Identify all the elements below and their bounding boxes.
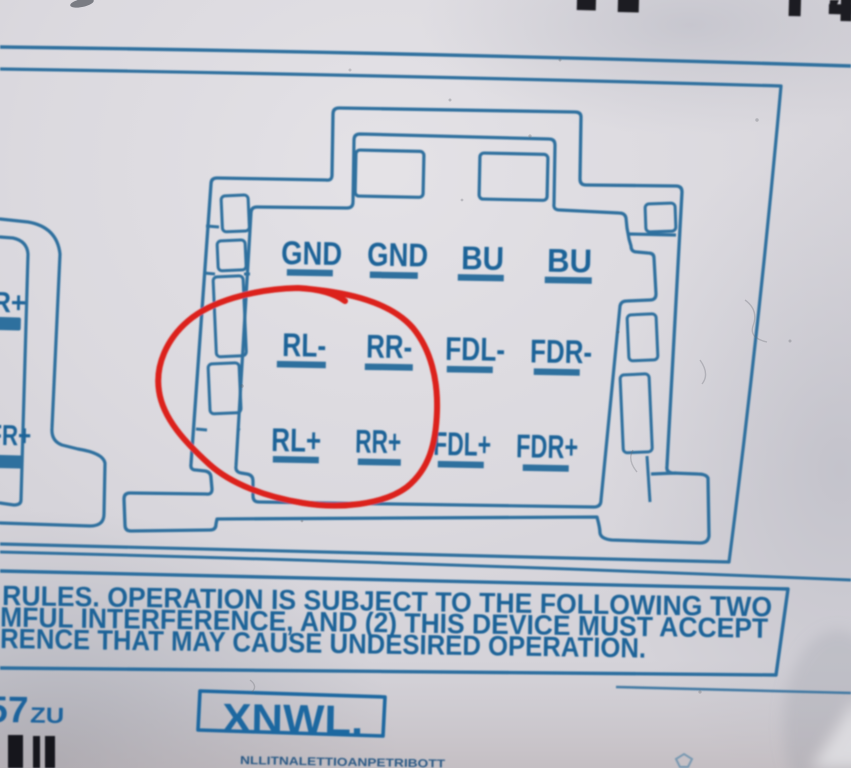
svg-text:BU: BU xyxy=(547,242,593,280)
svg-text:FDL-: FDL- xyxy=(445,330,506,368)
svg-text:FDL+: FDL+ xyxy=(433,425,492,463)
svg-text:RL-: RL- xyxy=(282,326,327,364)
svg-text:GND: GND xyxy=(281,234,343,272)
svg-text:ZU: ZU xyxy=(30,703,64,729)
svg-text:RR-: RR- xyxy=(366,327,413,365)
svg-text:FDR+: FDR+ xyxy=(516,427,579,465)
svg-text:RR+: RR+ xyxy=(355,422,402,460)
svg-text:XNWL.: XNWL. xyxy=(222,695,364,743)
svg-text:R+: R+ xyxy=(0,287,26,320)
svg-text:57: 57 xyxy=(0,689,29,731)
svg-text:RL+: RL+ xyxy=(271,421,322,459)
svg-text:BU: BU xyxy=(461,239,505,277)
svg-text:GND: GND xyxy=(367,236,429,274)
svg-text:FDR-: FDR- xyxy=(530,332,593,370)
svg-text:FR+: FR+ xyxy=(0,420,31,453)
